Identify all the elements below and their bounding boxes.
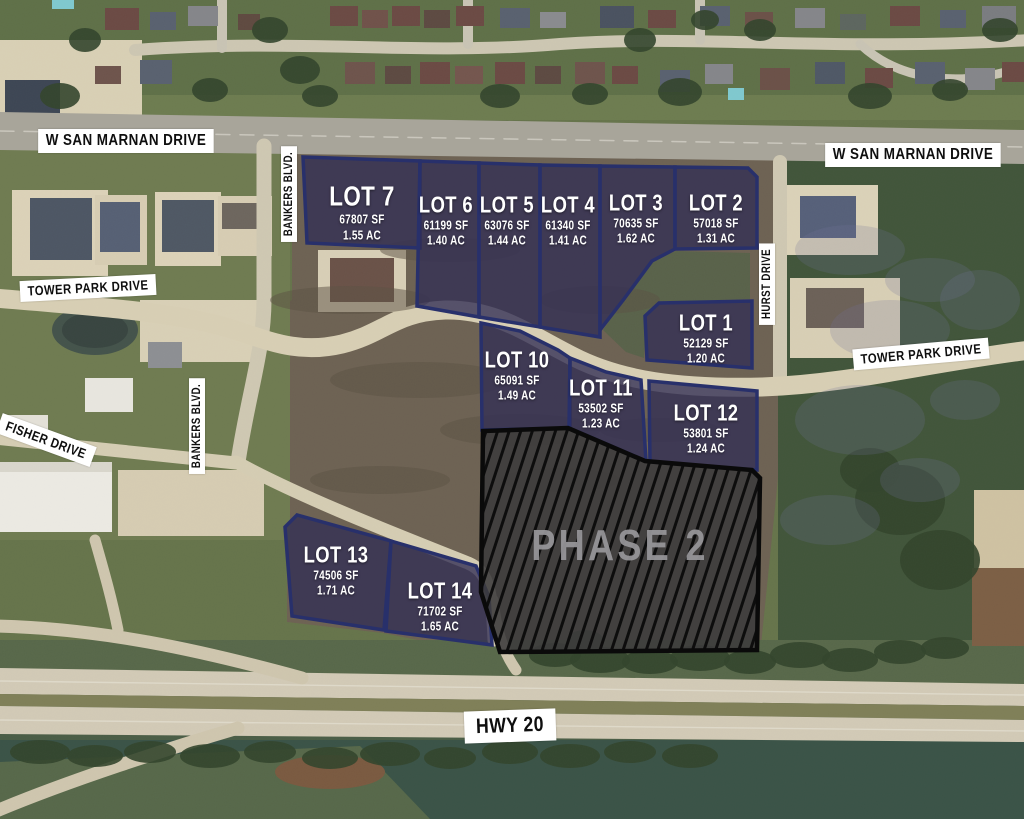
street-label-hwy-20: HWY 20 xyxy=(464,708,556,743)
lot-name: LOT 10 xyxy=(485,347,550,371)
lot-sf: 52129 SF xyxy=(679,337,733,350)
lot-name: LOT 3 xyxy=(609,190,663,214)
lot-name: LOT 11 xyxy=(569,375,633,399)
lot-10-label: LOT 10 65091 SF 1.49 AC xyxy=(485,347,550,402)
lot-sf: 70635 SF xyxy=(609,217,663,230)
street-label-hurst-drive: HURST DRIVE xyxy=(759,243,775,325)
lot-ac: 1.41 AC xyxy=(541,235,595,248)
lot-12-label: LOT 12 53801 SF 1.24 AC xyxy=(674,400,739,455)
lot-14-label: LOT 14 71702 SF 1.65 AC xyxy=(408,578,473,633)
lot-overlay xyxy=(0,0,1024,819)
lot-ac: 1.62 AC xyxy=(609,233,663,246)
lot-sf: 53502 SF xyxy=(569,402,633,415)
lot-sf: 61340 SF xyxy=(541,219,595,232)
lot-ac: 1.40 AC xyxy=(419,235,473,248)
phase-2-label: PHASE 2 xyxy=(531,521,708,571)
lot-ac: 1.23 AC xyxy=(569,418,633,431)
site-plan-map: PHASE 2 LOT 7 67807 SF 1.55 AC LOT 6 611… xyxy=(0,0,1024,819)
lot-ac: 1.24 AC xyxy=(674,443,739,456)
street-label-san-marnan-left: W SAN MARNAN DRIVE xyxy=(38,129,214,153)
lot-2-label: LOT 2 57018 SF 1.31 AC xyxy=(689,190,743,245)
lot-13-label: LOT 13 74506 SF 1.71 AC xyxy=(304,542,369,597)
lot-7-label: LOT 7 67807 SF 1.55 AC xyxy=(329,182,394,243)
street-label-bankers-blvd-lower: BANKERS BLVD. xyxy=(189,378,205,474)
lot-4-label: LOT 4 61340 SF 1.41 AC xyxy=(541,192,595,247)
lot-1-label: LOT 1 52129 SF 1.20 AC xyxy=(679,310,733,365)
lot-name: LOT 7 xyxy=(329,182,394,211)
lot-ac: 1.55 AC xyxy=(329,229,394,242)
lot-name: LOT 5 xyxy=(480,192,534,216)
lot-name: LOT 4 xyxy=(541,192,595,216)
lot-11-label: LOT 11 53502 SF 1.23 AC xyxy=(569,375,633,430)
lot-ac: 1.65 AC xyxy=(408,621,473,634)
lot-sf: 63076 SF xyxy=(480,219,534,232)
lot-ac: 1.20 AC xyxy=(679,353,733,366)
street-label-san-marnan-right: W SAN MARNAN DRIVE xyxy=(825,143,1001,167)
lot-ac: 1.31 AC xyxy=(689,233,743,246)
lot-sf: 65091 SF xyxy=(485,374,550,387)
lot-sf: 57018 SF xyxy=(689,217,743,230)
lot-name: LOT 2 xyxy=(689,190,743,214)
lot-3-label: LOT 3 70635 SF 1.62 AC xyxy=(609,190,663,245)
lot-name: LOT 12 xyxy=(674,400,739,424)
lot-name: LOT 13 xyxy=(304,542,369,566)
lot-name: LOT 14 xyxy=(408,578,473,602)
lot-sf: 71702 SF xyxy=(408,605,473,618)
lot-6-label: LOT 6 61199 SF 1.40 AC xyxy=(419,192,473,247)
lot-ac: 1.44 AC xyxy=(480,235,534,248)
lot-sf: 67807 SF xyxy=(329,214,394,227)
lot-sf: 61199 SF xyxy=(419,219,473,232)
lot-name: LOT 6 xyxy=(419,192,473,216)
lot-5-label: LOT 5 63076 SF 1.44 AC xyxy=(480,192,534,247)
lot-ac: 1.49 AC xyxy=(485,390,550,403)
street-label-bankers-blvd-top: BANKERS BLVD. xyxy=(281,146,297,242)
lot-name: LOT 1 xyxy=(679,310,733,334)
lot-sf: 53801 SF xyxy=(674,427,739,440)
lot-ac: 1.71 AC xyxy=(304,585,369,598)
lot-sf: 74506 SF xyxy=(304,569,369,582)
